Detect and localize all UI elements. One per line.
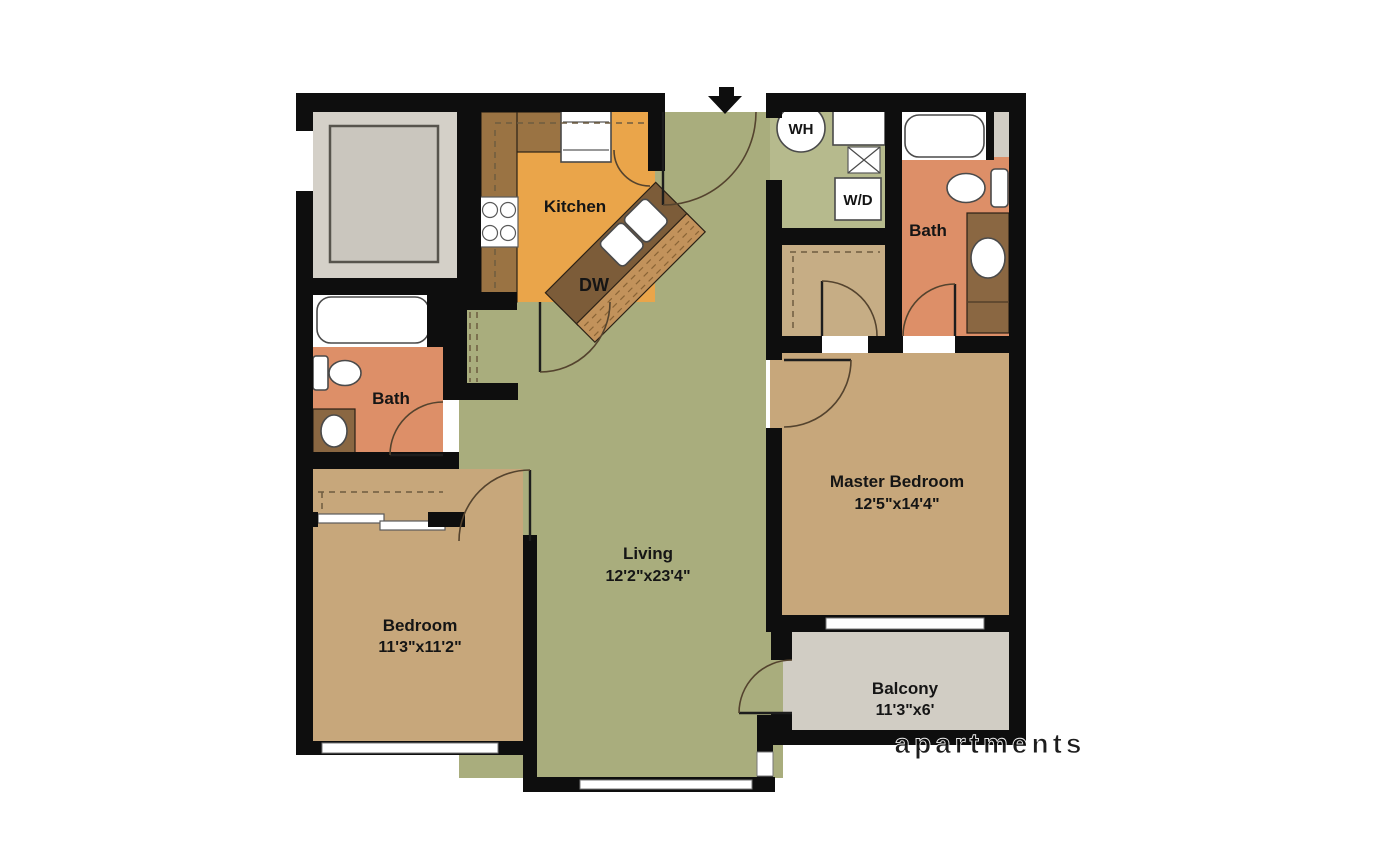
bedroom-label: Bedroom <box>383 616 458 635</box>
walkin-closet-floor <box>770 245 885 336</box>
bedroom-dims: 11'3"x11'2" <box>378 639 461 656</box>
master-bedroom-label: Master Bedroom <box>830 472 964 491</box>
wall-master-top-3 <box>955 336 1009 353</box>
balcony-dims: 11'3"x6' <box>876 702 935 719</box>
sliding-door-panel <box>318 514 384 523</box>
wall-divider-low <box>766 428 782 632</box>
stove <box>480 197 518 247</box>
wall-hall-closet-bottom <box>443 383 518 400</box>
water-heater-label: WH <box>789 121 814 138</box>
wall-divider-top <box>766 93 782 118</box>
master-bedroom-dims: 12'5"x14'4" <box>854 496 939 513</box>
bath-right-label: Bath <box>909 221 947 240</box>
wall-bath-right-left <box>885 93 902 353</box>
balcony-label: Balcony <box>872 679 939 698</box>
burner-icon <box>483 226 498 241</box>
wall-right <box>1009 93 1026 745</box>
wall-laundry-bottom <box>766 228 885 245</box>
wall-utility-bottom <box>296 278 465 295</box>
pantry-nook-floor <box>612 112 650 165</box>
floor-plan-page: DW WH W/D <box>0 0 1400 852</box>
bathtub-icon <box>317 297 429 343</box>
wall-left <box>296 93 313 755</box>
wall-utility-right <box>457 93 481 295</box>
floor-plan-svg: DW WH W/D <box>0 0 1400 852</box>
burner-icon <box>501 226 516 241</box>
wall-master-top-2 <box>868 336 903 353</box>
toilet-icon <box>947 174 985 203</box>
wall-hall-closet-top <box>443 292 517 310</box>
window-utility-left <box>296 131 313 191</box>
entry-arrow-stem <box>719 87 734 96</box>
bedroom-floor <box>313 469 523 743</box>
wall-master-top-1 <box>766 336 822 353</box>
sink-icon <box>321 415 347 447</box>
wall-bedroom-right <box>523 535 537 743</box>
washer-dryer-label: W/D <box>843 192 872 209</box>
toilet-tank <box>991 169 1008 207</box>
sink-icon <box>971 238 1005 278</box>
bathtub-icon <box>905 115 984 157</box>
window-bedroom <box>322 743 498 753</box>
kitchen-label: Kitchen <box>544 197 606 216</box>
laundry-appliance-box <box>833 107 885 145</box>
watermark-text: apartments <box>895 728 1086 759</box>
window-master-balcony <box>826 618 984 629</box>
window-bay-side <box>757 752 773 776</box>
toilet-tank <box>313 356 328 390</box>
linen-shelf <box>994 112 1009 157</box>
utility-room-pad <box>330 126 438 262</box>
utility-room <box>313 112 457 278</box>
refrigerator <box>561 108 611 162</box>
living-dims: 12'2"x23'4" <box>605 568 690 585</box>
burner-icon <box>483 203 498 218</box>
window-living-bay <box>580 780 752 789</box>
entry-arrow-head <box>708 96 742 114</box>
entry-arrow-icon <box>708 87 742 114</box>
living-label: Living <box>623 544 673 563</box>
wall-stub <box>428 512 465 527</box>
wall-divider-mid <box>766 180 782 360</box>
bath-left-label: Bath <box>372 389 410 408</box>
burner-icon <box>501 203 516 218</box>
dishwasher-label: DW <box>579 275 609 295</box>
refrigerator-box <box>561 108 611 162</box>
wall-stub <box>986 112 994 160</box>
toilet-icon <box>329 361 361 386</box>
